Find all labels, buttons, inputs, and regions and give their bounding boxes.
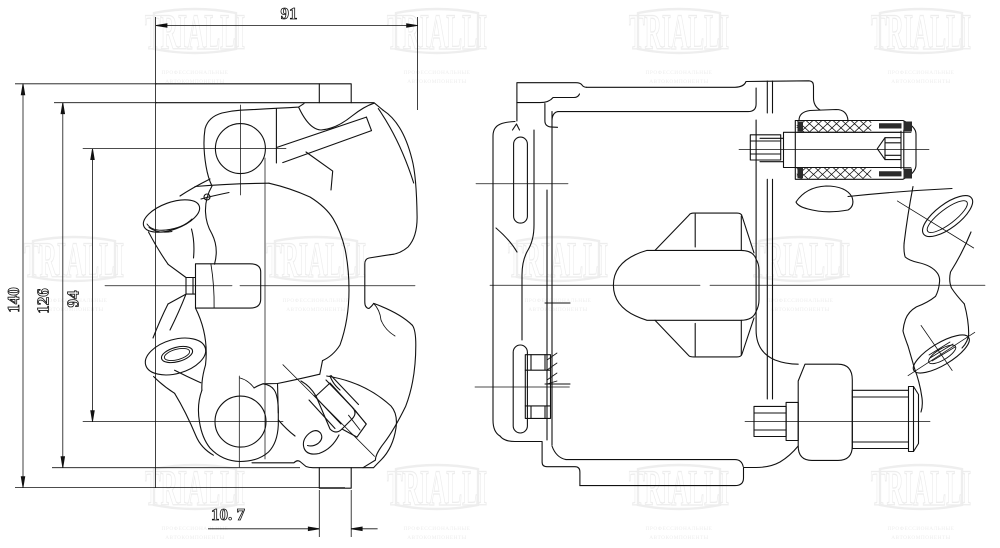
svg-text:94: 94 — [64, 290, 83, 308]
svg-text:140: 140 — [4, 287, 23, 313]
svg-text:91: 91 — [281, 4, 298, 23]
svg-text:10. 7: 10. 7 — [211, 505, 246, 524]
svg-text:126: 126 — [34, 288, 53, 314]
